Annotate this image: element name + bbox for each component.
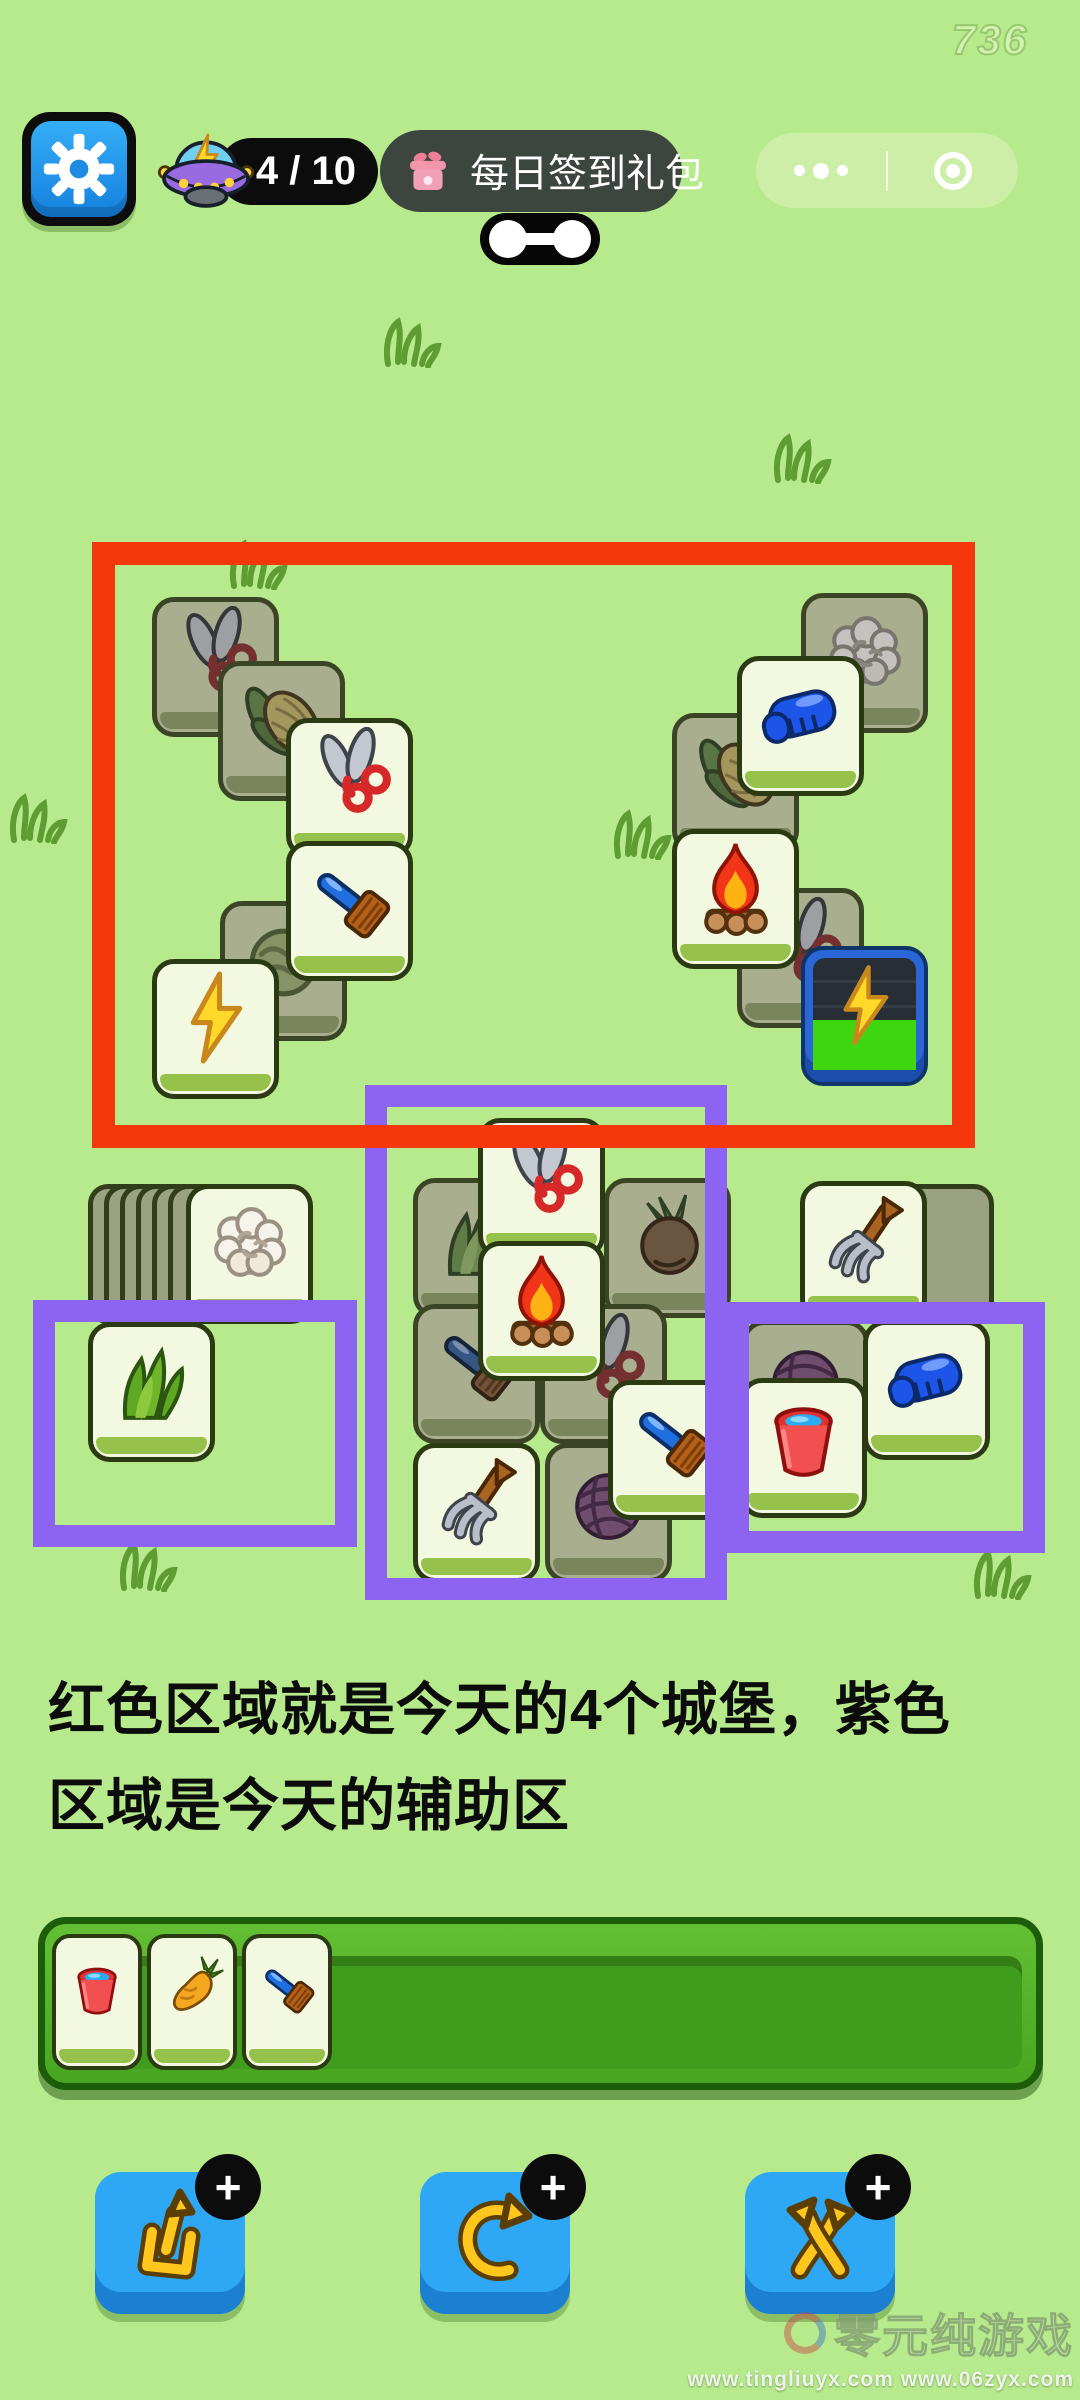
plus-badge[interactable]: + <box>195 2154 261 2220</box>
gift-icon <box>400 143 456 199</box>
plus-badge[interactable]: + <box>845 2154 911 2220</box>
more-dots-icon <box>813 163 829 179</box>
undo-button[interactable]: + <box>420 2172 570 2314</box>
tile-pitchfork[interactable] <box>800 1181 927 1321</box>
watermark-logo-icon <box>784 2312 826 2354</box>
close-minimize-button[interactable] <box>888 133 1018 208</box>
grass-doodle-icon <box>972 1548 1052 1605</box>
fps-counter: 736 <box>952 16 1028 64</box>
caption-line-1: 红色区域就是今天的4个城堡，紫色 <box>48 1662 1048 1758</box>
watermark: 零元纯游戏 www.tingliuyx.com www.06zyx.com <box>654 2300 1074 2392</box>
daily-signin-button[interactable]: 每日签到礼包 <box>380 130 682 212</box>
purple-helper-zone-box <box>33 1300 357 1547</box>
red-castle-zone-box <box>92 542 975 1148</box>
shuffle-button[interactable]: + <box>745 2172 895 2314</box>
drag-handle[interactable] <box>480 213 600 265</box>
more-button[interactable] <box>756 133 886 208</box>
more-dots-icon <box>794 165 805 176</box>
target-circle-icon <box>934 152 972 190</box>
miniprogram-capsule <box>756 133 1018 208</box>
caption-line-2: 区域是今天的辅助区 <box>48 1758 1048 1854</box>
purple-helper-zone-box <box>727 1302 1045 1553</box>
tray-tile-bucket <box>52 1934 142 2070</box>
handle-dot-right <box>553 220 591 258</box>
grass-doodle-icon <box>118 1540 198 1597</box>
watermark-title: 零元纯游戏 <box>834 2300 1074 2366</box>
watermark-urls: www.tingliuyx.com www.06zyx.com <box>654 2368 1074 2392</box>
plus-badge[interactable]: + <box>520 2154 586 2220</box>
grass-doodle-icon <box>382 316 462 373</box>
daily-signin-label: 每日签到礼包 <box>470 143 704 199</box>
tray-tile-carrot <box>147 1934 237 2070</box>
game-screen: 736 4 / 10 <box>0 0 1080 2400</box>
settings-button[interactable] <box>22 112 136 226</box>
purple-helper-zone-box <box>365 1085 727 1600</box>
remove-tile-button[interactable]: + <box>95 2172 245 2314</box>
grass-doodle-icon <box>8 792 88 849</box>
caption-text: 红色区域就是今天的4个城堡，紫色 区域是今天的辅助区 <box>48 1662 1048 1854</box>
tray-tile-brush <box>242 1934 332 2070</box>
ufo-energy-icon <box>150 120 262 216</box>
energy-counter-text: 4 / 10 <box>256 149 356 194</box>
gear-icon <box>31 121 127 217</box>
more-dots-icon <box>837 165 848 176</box>
grass-doodle-icon <box>772 432 852 489</box>
